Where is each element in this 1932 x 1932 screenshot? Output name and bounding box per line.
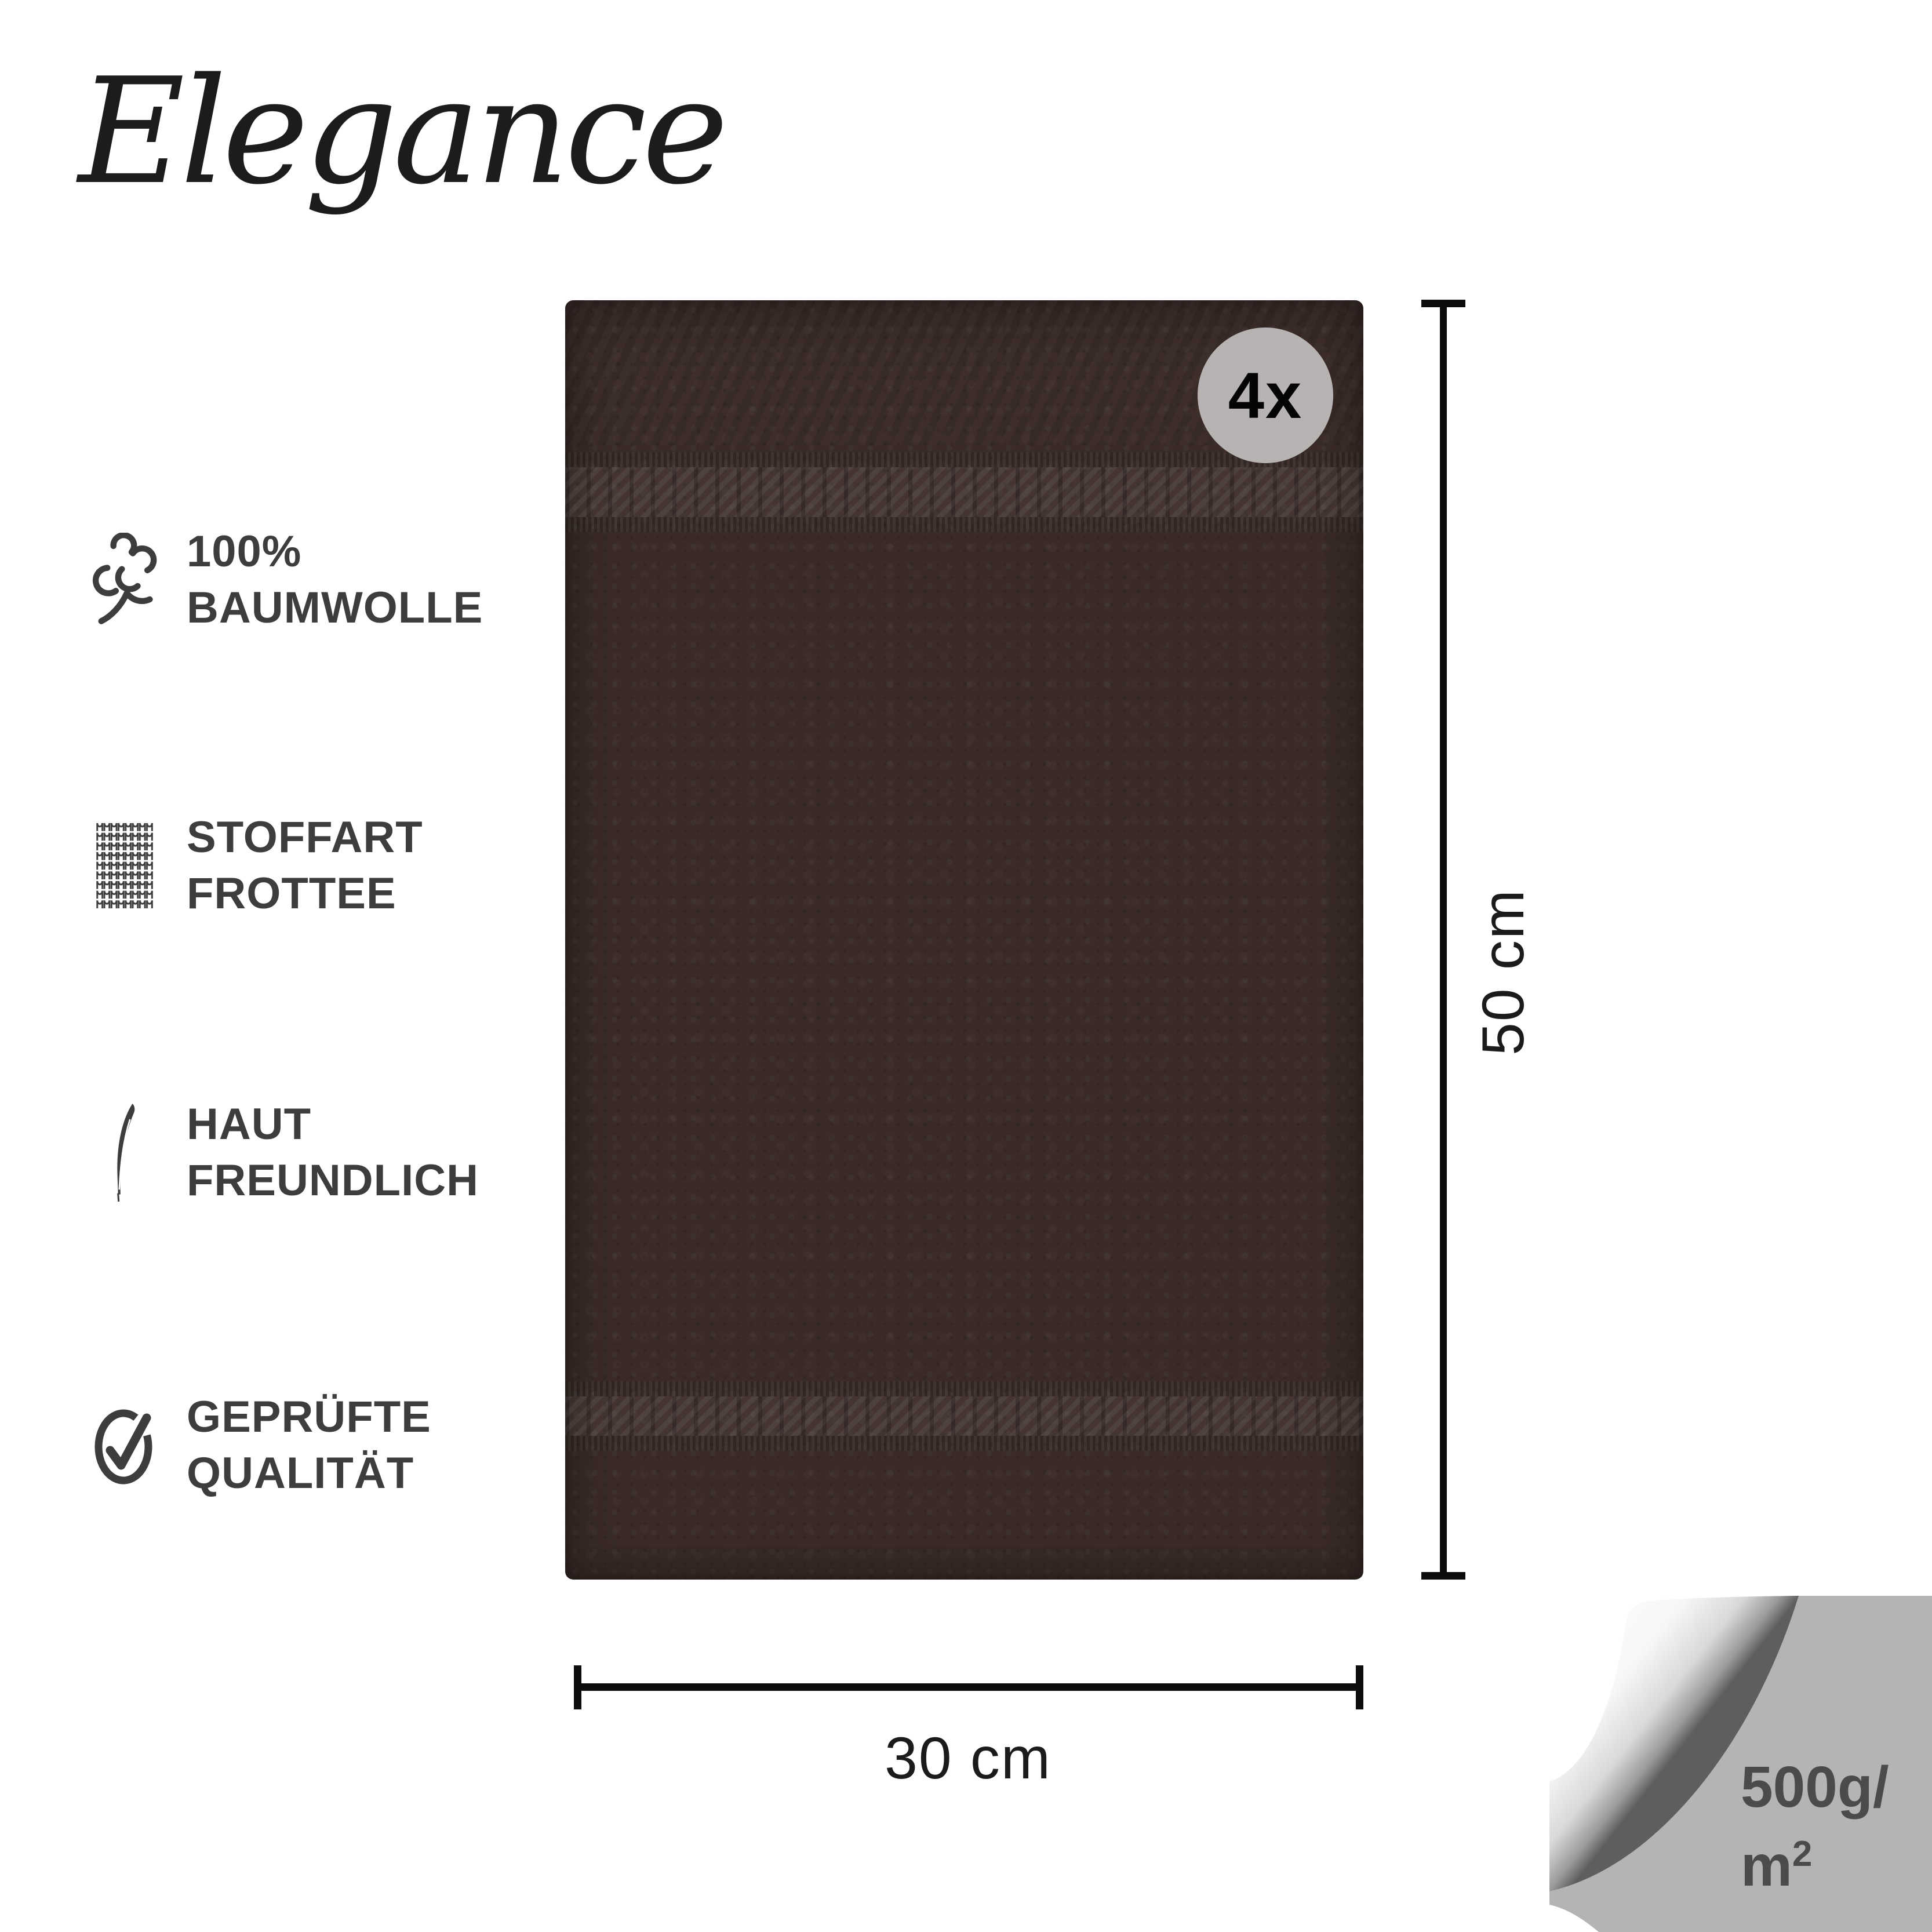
feature-cotton: 100% BAUMWOLLE (87, 513, 638, 646)
height-dimension-cap-bottom (1421, 1572, 1465, 1580)
towel-border-band-top (565, 452, 1363, 532)
feature-cotton-label: 100% BAUMWOLLE (187, 523, 483, 636)
feature-fabric-line2: FROTTEE (187, 865, 423, 922)
feature-skin-line2: FREUNDLICH (187, 1152, 479, 1209)
brand-logo: Elegance (78, 41, 716, 223)
page-curl-corner: 500g/ m2 (1549, 1596, 1932, 1932)
width-dimension-line (574, 1683, 1363, 1691)
towel-border-band-bottom (565, 1381, 1363, 1451)
weight-line1: 500g/ (1741, 1755, 1889, 1820)
feature-quality: GEPRÜFTE QUALITÄT (87, 1378, 638, 1512)
feather-icon (87, 1100, 162, 1205)
quantity-badge-label: 4x (1228, 358, 1303, 433)
product-infographic: Elegance 100% BAUMWOLLE (0, 0, 1932, 1932)
width-dimension-label: 30 cm (812, 1726, 1125, 1790)
width-dimension-cap-right (1356, 1665, 1363, 1709)
feature-fabric: STOFFART FROTTEE (87, 799, 638, 932)
feature-fabric-line1: STOFFART (187, 809, 423, 865)
width-dimension-cap-left (574, 1665, 581, 1709)
feature-skin-label: HAUT FREUNDLICH (187, 1096, 479, 1209)
feature-quality-line2: QUALITÄT (187, 1445, 431, 1501)
quantity-badge: 4x (1198, 328, 1333, 463)
feature-skin-line1: HAUT (187, 1096, 479, 1152)
height-dimension-label: 50 cm (1471, 850, 1535, 1094)
weight-label: 500g/ m2 (1741, 1753, 1932, 1900)
height-dimension-line (1440, 300, 1447, 1580)
weight-line2: m (1741, 1833, 1792, 1898)
feature-fabric-label: STOFFART FROTTEE (187, 809, 423, 922)
check-circle-icon (87, 1402, 162, 1489)
feature-cotton-line1: 100% (187, 523, 483, 580)
towel-image (565, 300, 1363, 1580)
height-dimension-cap-top (1421, 300, 1465, 307)
feature-cotton-line2: BAUMWOLLE (187, 580, 483, 636)
weight-line2-sup: 2 (1792, 1834, 1812, 1874)
feature-quality-line1: GEPRÜFTE (187, 1389, 431, 1445)
fabric-knit-icon (87, 821, 162, 909)
cotton-icon (87, 533, 162, 627)
feature-skin: HAUT FREUNDLICH (87, 1086, 638, 1219)
feature-quality-label: GEPRÜFTE QUALITÄT (187, 1389, 431, 1501)
